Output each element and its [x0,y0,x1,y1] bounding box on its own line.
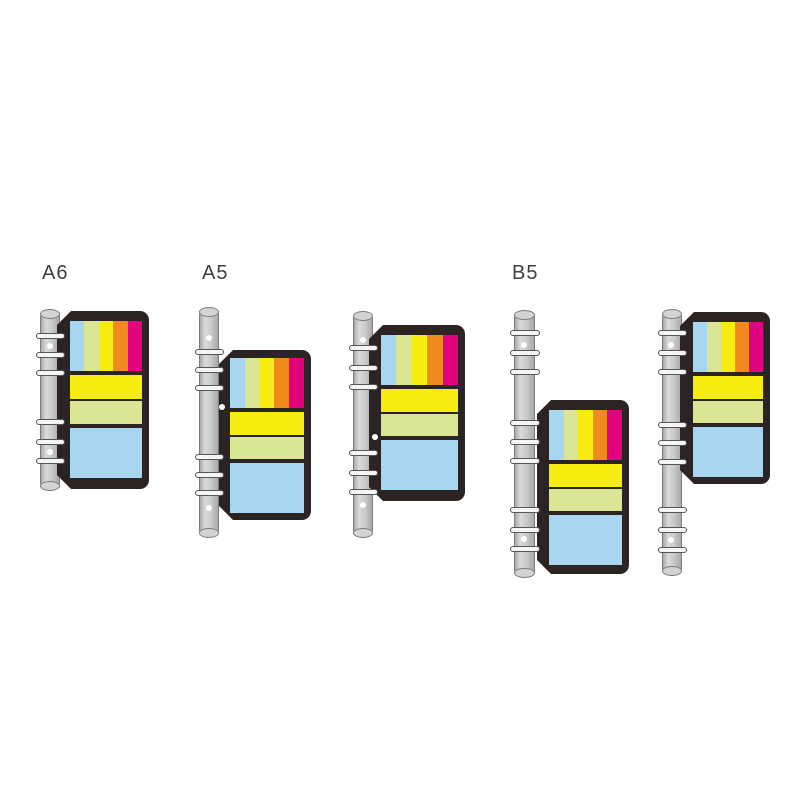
tab-strip-orange [427,335,442,385]
rivet-hole [521,342,527,348]
sticky-note-green [381,414,458,436]
sticky-note-yellow [70,375,142,399]
tab-strip-green [396,335,411,385]
binder-ring [349,470,378,476]
tab-strip-green [245,358,260,408]
size-label-b5: B5 [512,263,538,283]
binder-ring [195,385,224,391]
tab-strip-blue [381,335,396,385]
spine-top-cap [199,307,219,317]
tab-strip-blue [693,322,707,372]
refill-card-b5-alt [680,312,770,484]
spine-bottom-cap [662,566,682,576]
spine-bottom-cap [199,528,219,538]
binder-ring [36,439,65,445]
binder-ring [658,350,687,356]
binder-ring [195,490,224,496]
product-illustration: A6A5B5 [0,0,800,800]
tab-strip-blue [70,321,84,371]
sticky-note-green [693,401,763,423]
tab-strip-orange [274,358,289,408]
binder-ring [349,450,378,456]
binder-ring [658,440,687,446]
tab-strip-blue [230,358,245,408]
binder-spine [199,308,219,537]
spine-bottom-cap [40,481,60,491]
tab-strip-magenta [289,358,304,408]
tab-strip-magenta [443,335,458,385]
sticky-note-yellow [230,412,304,435]
spine-top-cap [514,310,535,320]
binder-ring [658,422,687,428]
sticky-note-blue [549,515,622,565]
tab-strip-magenta [749,322,763,372]
size-label-a5: A5 [202,263,228,283]
rivet-hole [47,343,53,349]
sticky-note-blue [381,440,458,490]
binder-ring [658,369,687,375]
spine-top-cap [662,309,682,319]
size-label-a6: A6 [42,263,68,283]
tab-strip-orange [735,322,749,372]
refill-card-a5 [219,350,311,520]
rivet-hole [372,434,378,440]
index-tab-strips [693,322,763,372]
binder-ring [658,459,687,465]
binder-ring [658,527,687,533]
sticky-note-green [70,401,142,424]
binder-ring [36,352,65,358]
binder-ring [658,330,687,336]
tab-strip-blue [549,410,564,460]
sticky-note-green [549,489,622,511]
binder-ring [510,458,540,464]
index-tab-strips [549,410,622,460]
tab-strip-yellow [260,358,275,408]
sticky-note-yellow [549,464,622,487]
binder-ring [510,369,540,375]
binder-ring [510,420,540,426]
binder-ring [510,439,540,445]
binder-ring [36,370,65,376]
spine-top-cap [40,309,60,319]
spine-top-cap [353,311,373,321]
rivet-hole [668,537,674,543]
refill-card-a5-alt [369,325,465,501]
index-tab-strips [381,335,458,385]
binder-ring [510,507,540,513]
sticky-note-blue [693,427,763,477]
tab-strip-yellow [412,335,427,385]
tab-strip-magenta [607,410,622,460]
binder-ring [510,527,540,533]
binder-ring [36,333,65,339]
sticky-note-blue [70,428,142,478]
binder-ring [349,365,378,371]
binder-ring [195,454,224,460]
rivet-hole [521,536,527,542]
tab-strip-green [84,321,98,371]
sticky-note-blue [230,463,304,513]
rivet-hole [360,502,366,508]
binder-ring [195,472,224,478]
tab-strip-orange [113,321,127,371]
rivet-hole [360,337,366,343]
spine-bottom-cap [514,568,535,578]
rivet-hole [219,404,225,410]
binder-ring [195,349,224,355]
tab-strip-yellow [99,321,113,371]
tab-strip-green [564,410,579,460]
rivet-hole [47,449,53,455]
index-tab-strips [230,358,304,408]
rivet-hole [668,342,674,348]
binder-ring [510,350,540,356]
binder-ring [36,458,65,464]
tab-strip-yellow [721,322,735,372]
tab-strip-green [707,322,721,372]
binder-ring [349,384,378,390]
binder-ring [195,367,224,373]
rivet-hole [206,505,212,511]
rivet-hole [206,335,212,341]
sticky-note-yellow [381,389,458,412]
spine-bottom-cap [353,528,373,538]
refill-card-b5 [537,400,629,574]
binder-ring [658,507,687,513]
binder-ring [658,547,687,553]
binder-ring [349,345,378,351]
sticky-note-yellow [693,376,763,399]
refill-card-a6 [57,311,149,489]
binder-ring [36,419,65,425]
binder-ring [510,546,540,552]
tab-strip-orange [593,410,608,460]
binder-ring [349,489,378,495]
sticky-note-green [230,437,304,459]
tab-strip-magenta [128,321,142,371]
index-tab-strips [70,321,142,371]
tab-strip-yellow [578,410,593,460]
binder-ring [510,330,540,336]
